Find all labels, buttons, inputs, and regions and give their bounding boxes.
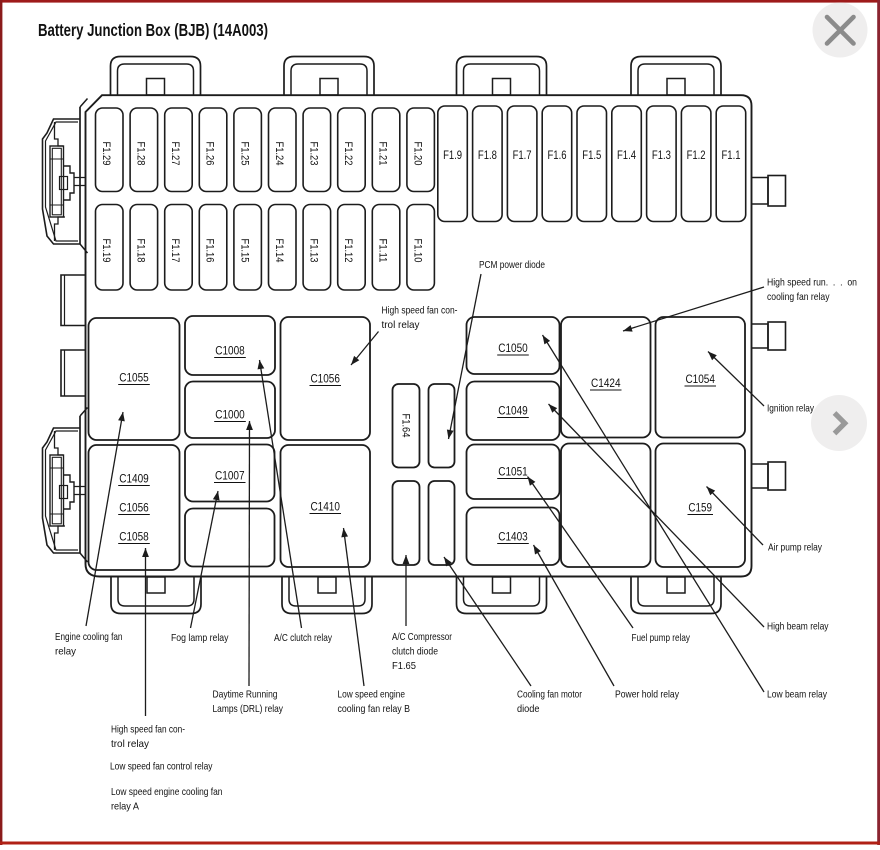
svg-text:F1.6: F1.6 — [548, 150, 567, 162]
svg-text:C1050: C1050 — [498, 341, 528, 355]
svg-text:F1.65: F1.65 — [392, 660, 416, 672]
svg-text:Power hold relay: Power hold relay — [615, 689, 680, 701]
svg-text:High beam relay: High beam relay — [767, 621, 829, 633]
svg-text:C1055: C1055 — [119, 371, 149, 385]
svg-text:Low speed engine cooling fan: Low speed engine cooling fan — [111, 786, 223, 798]
svg-text:C1403: C1403 — [498, 530, 528, 544]
svg-text:High speed run. . . on: High speed run. . . on — [767, 277, 857, 289]
svg-text:C1008: C1008 — [215, 344, 245, 358]
svg-text:cooling fan relay: cooling fan relay — [767, 291, 830, 303]
svg-text:F1.3: F1.3 — [652, 150, 671, 162]
svg-text:High speed fan con-: High speed fan con- — [382, 305, 458, 317]
svg-text:relay: relay — [55, 646, 77, 658]
svg-text:Air pump relay: Air pump relay — [768, 542, 823, 554]
svg-text:F1.25: F1.25 — [238, 141, 250, 165]
svg-text:F1.19: F1.19 — [100, 239, 112, 263]
svg-text:Daytime Running: Daytime Running — [213, 689, 278, 701]
svg-text:A/C clutch relay: A/C clutch relay — [274, 632, 333, 644]
svg-text:F1.8: F1.8 — [478, 150, 497, 162]
svg-text:F1.12: F1.12 — [342, 239, 354, 263]
svg-text:trol relay: trol relay — [111, 738, 150, 750]
svg-text:F1.2: F1.2 — [687, 150, 706, 162]
svg-text:F1.13: F1.13 — [307, 239, 319, 263]
svg-text:F1.4: F1.4 — [617, 150, 636, 162]
svg-text:Cooling fan motor: Cooling fan motor — [517, 689, 582, 701]
svg-text:trol relay: trol relay — [382, 319, 421, 331]
svg-text:C1410: C1410 — [310, 500, 340, 514]
svg-text:C1424: C1424 — [591, 376, 621, 390]
svg-text:F1.64: F1.64 — [400, 414, 412, 438]
svg-text:C1000: C1000 — [215, 408, 245, 422]
svg-text:F1.20: F1.20 — [411, 142, 423, 166]
svg-text:cooling fan relay B: cooling fan relay B — [338, 703, 411, 715]
svg-text:C1058: C1058 — [119, 530, 149, 544]
svg-text:Fog lamp relay: Fog lamp relay — [171, 632, 229, 644]
svg-text:F1.24: F1.24 — [273, 142, 285, 166]
svg-text:C1049: C1049 — [498, 404, 528, 418]
svg-text:C159: C159 — [688, 501, 712, 515]
svg-text:F1.23: F1.23 — [307, 142, 319, 166]
svg-text:F1.17: F1.17 — [169, 239, 181, 263]
svg-text:Low speed engine: Low speed engine — [338, 689, 406, 701]
svg-text:F1.1: F1.1 — [722, 150, 741, 162]
svg-text:Battery Junction Box (BJB) (14: Battery Junction Box (BJB) (14A003) — [38, 20, 268, 40]
svg-text:F1.26: F1.26 — [204, 142, 216, 166]
svg-text:F1.22: F1.22 — [342, 142, 354, 166]
svg-text:F1.9: F1.9 — [443, 150, 462, 162]
svg-text:F1.10: F1.10 — [411, 239, 423, 263]
svg-text:High speed fan con-: High speed fan con- — [111, 724, 185, 736]
svg-text:C1409: C1409 — [119, 472, 149, 486]
svg-text:F1.21: F1.21 — [377, 142, 389, 166]
svg-text:Low beam relay: Low beam relay — [767, 689, 828, 701]
svg-text:relay A: relay A — [111, 801, 139, 813]
svg-text:F1.5: F1.5 — [582, 150, 601, 162]
svg-text:F1.18: F1.18 — [134, 239, 146, 263]
svg-text:F1.16: F1.16 — [204, 239, 216, 263]
svg-text:C1051: C1051 — [498, 465, 528, 479]
svg-text:C1056: C1056 — [119, 501, 149, 515]
svg-text:F1.7: F1.7 — [513, 150, 532, 162]
svg-text:Low speed fan control relay: Low speed fan control relay — [110, 761, 213, 773]
svg-text:diode: diode — [517, 703, 540, 715]
svg-text:F1.27: F1.27 — [169, 142, 181, 166]
svg-text:F1.28: F1.28 — [134, 142, 146, 166]
svg-text:F1.11: F1.11 — [377, 239, 389, 263]
svg-text:F1.15: F1.15 — [238, 238, 250, 262]
svg-text:clutch diode: clutch diode — [392, 646, 438, 658]
svg-text:C1054: C1054 — [685, 372, 715, 386]
svg-text:C1007: C1007 — [215, 469, 245, 483]
svg-text:PCM power diode: PCM power diode — [479, 259, 545, 271]
svg-text:F1.29: F1.29 — [100, 142, 112, 166]
svg-text:Lamps (DRL) relay: Lamps (DRL) relay — [213, 703, 284, 715]
svg-text:F1.14: F1.14 — [273, 239, 285, 263]
svg-text:Engine cooling fan: Engine cooling fan — [55, 631, 123, 643]
svg-text:C1056: C1056 — [310, 372, 340, 386]
svg-text:Ignition relay: Ignition relay — [767, 403, 815, 415]
svg-text:A/C Compressor: A/C Compressor — [392, 631, 452, 643]
svg-text:Fuel pump relay: Fuel pump relay — [632, 632, 691, 644]
